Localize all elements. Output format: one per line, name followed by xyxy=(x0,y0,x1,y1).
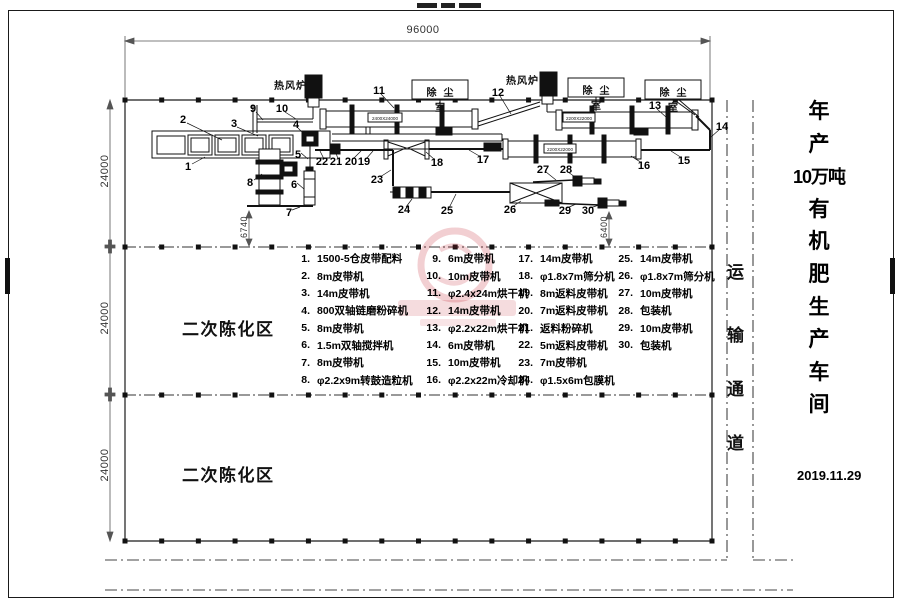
legend-item-number: 1. xyxy=(288,253,310,265)
legend-column: 17.14m皮带机18.φ1.8x7m筛分机19.8m返料皮带机20.7m返料皮… xyxy=(509,250,615,389)
zone-label-lower: 二次陈化区 xyxy=(182,461,275,486)
callout-number-8: 8 xyxy=(247,177,253,189)
tank-6 xyxy=(304,167,315,205)
legend-item: 23.7m皮带机 xyxy=(509,354,615,371)
legend-item-number: 27. xyxy=(608,287,633,299)
legend-item-number: 4. xyxy=(288,305,310,317)
legend-item-number: 7. xyxy=(288,357,310,369)
title-char: 产 xyxy=(791,129,847,162)
title-char: 间 xyxy=(791,389,847,422)
callout-number-20: 20 xyxy=(345,156,357,168)
dim-granulator-drop: 6740 xyxy=(239,207,249,247)
dim-bay-3: 24000 xyxy=(99,439,111,491)
callout-number-3: 3 xyxy=(231,118,237,130)
title-char: 车 xyxy=(791,357,847,390)
legend-item-number: 13. xyxy=(418,322,441,334)
callout-number-4: 4 xyxy=(293,119,299,131)
legend-item-number: 21. xyxy=(509,322,533,334)
legend-item-name: 14m皮带机 xyxy=(540,251,593,266)
legend-item-name: 14m皮带机 xyxy=(317,286,370,301)
legend-column: 25.14m皮带机26.φ1.8x7m筛分机27.10m皮带机28.包装机29.… xyxy=(608,250,715,354)
legend-item-name: 1.5m双轴搅拌机 xyxy=(317,338,393,353)
callout-number-16: 16 xyxy=(638,160,650,172)
title-char: 机 xyxy=(791,226,847,259)
callout-number-2: 2 xyxy=(180,114,186,126)
legend-item-number: 14. xyxy=(418,339,441,351)
legend-item: 20.7m返料皮带机 xyxy=(509,302,615,319)
legend-item-number: 18. xyxy=(509,270,533,282)
title-char: 肥 xyxy=(791,259,847,292)
legend-item-name: φ1.8x7m筛分机 xyxy=(640,269,715,284)
zone-label-upper: 二次陈化区 xyxy=(182,315,275,340)
callout-number-22: 22 xyxy=(316,156,328,168)
legend-item: 24.φ1.5x6m包膜机 xyxy=(509,371,615,388)
callout-number-29: 29 xyxy=(559,205,571,217)
callout-number-1: 1 xyxy=(185,161,191,173)
legend-item-number: 22. xyxy=(509,339,533,351)
legend-item: 8.φ2.2x9m转鼓造粒机 xyxy=(288,371,413,388)
legend-item-number: 6. xyxy=(288,339,310,351)
legend-item-name: 6m皮带机 xyxy=(448,251,495,266)
legend-item-number: 29. xyxy=(608,322,633,334)
callout-number-17: 17 xyxy=(477,154,489,166)
legend-item-name: φ2.2x9m转鼓造粒机 xyxy=(317,373,413,388)
dust-room-b-label: 除尘室 xyxy=(568,82,624,112)
legend-item-name: 10m皮带机 xyxy=(448,269,501,284)
title-char: 年 xyxy=(791,96,847,129)
callout-number-26: 26 xyxy=(504,204,516,216)
legend-item-number: 15. xyxy=(418,357,441,369)
dim-top-width: 96000 xyxy=(398,24,448,36)
legend-item: 26.φ1.8x7m筛分机 xyxy=(608,267,715,284)
corridor-char-1: 运 xyxy=(727,258,744,283)
legend-item-name: 10m皮带机 xyxy=(640,321,693,336)
callout-number-6: 6 xyxy=(291,179,297,191)
cad-drawing-sheet: 2400X24000 2200X22000 2200X22000 96000 2… xyxy=(0,0,900,601)
legend-item-number: 10. xyxy=(418,270,441,282)
legend-item-name: φ1.8x7m筛分机 xyxy=(540,269,615,284)
callout-number-13: 13 xyxy=(649,100,661,112)
legend-item-name: 10m皮带机 xyxy=(448,355,501,370)
legend-item-name: 5m返料皮带机 xyxy=(540,338,608,353)
legend-item-number: 8. xyxy=(288,374,310,386)
legend-item-name: 包装机 xyxy=(640,338,672,353)
legend-item-number: 16. xyxy=(418,374,441,386)
furnace-2-label: 热风炉 xyxy=(506,72,539,87)
legend-item: 18.φ1.8x7m筛分机 xyxy=(509,267,615,284)
title-char: 10万吨 xyxy=(791,161,847,194)
legend-item-name: 14m皮带机 xyxy=(448,303,501,318)
legend-item-number: 23. xyxy=(509,357,533,369)
legend-item-name: φ1.5x6m包膜机 xyxy=(540,373,615,388)
legend-item: 27.10m皮带机 xyxy=(608,285,715,302)
callout-number-14: 14 xyxy=(716,121,728,133)
coating-machine-24 xyxy=(390,187,432,198)
hot-air-furnace-1 xyxy=(305,75,322,119)
legend-item-number: 20. xyxy=(509,305,533,317)
legend-item: 4.800双轴链磨粉碎机 xyxy=(288,302,413,319)
drum11-size-label: 2400X24000 xyxy=(372,116,399,121)
legend-item: 28.包装机 xyxy=(608,302,715,319)
callout-number-25: 25 xyxy=(441,205,453,217)
callout-number-12: 12 xyxy=(492,87,504,99)
legend-item: 22.5m返料皮带机 xyxy=(509,337,615,354)
legend-item-name: 8m皮带机 xyxy=(317,321,364,336)
legend-item-name: 8m返料皮带机 xyxy=(540,286,608,301)
belt-conveyor-27 xyxy=(533,180,574,182)
legend-item: 17.14m皮带机 xyxy=(509,250,615,267)
legend-item-name: 10m皮带机 xyxy=(640,286,693,301)
dim-packer-drop: 6400 xyxy=(599,207,609,247)
legend-item-number: 26. xyxy=(608,270,633,282)
drawing-date: 2019.11.29 xyxy=(797,468,861,483)
dim-bay-1: 24000 xyxy=(99,145,111,197)
legend-item-name: 8m皮带机 xyxy=(317,355,364,370)
legend-item-name: 7m皮带机 xyxy=(540,355,587,370)
legend-item-number: 25. xyxy=(608,253,633,265)
legend-item: 1.1500-5仓皮带配料 xyxy=(288,250,413,267)
corridor-char-2: 输 xyxy=(727,321,744,346)
legend-item-number: 30. xyxy=(608,339,633,351)
legend-item-number: 24. xyxy=(509,374,533,386)
legend-item-name: 8m皮带机 xyxy=(317,269,364,284)
callout-number-27: 27 xyxy=(537,164,549,176)
legend-item-number: 12. xyxy=(418,305,441,317)
dust-room-a-label: 除尘室 xyxy=(412,84,468,114)
packing-machine-28 xyxy=(573,176,601,186)
corridor-char-4: 道 xyxy=(727,429,744,454)
legend-item: 3.14m皮带机 xyxy=(288,285,413,302)
legend-item-name: 包装机 xyxy=(640,303,672,318)
legend-item-number: 3. xyxy=(288,287,310,299)
callout-number-18: 18 xyxy=(431,157,443,169)
callout-number-21: 21 xyxy=(330,156,342,168)
title-char: 有 xyxy=(791,194,847,227)
furnace-1-label: 热风炉 xyxy=(274,77,307,92)
legend-item-name: 800双轴链磨粉碎机 xyxy=(317,303,408,318)
legend-column: 1.1500-5仓皮带配料2.8m皮带机3.14m皮带机4.800双轴链磨粉碎机… xyxy=(288,250,413,389)
incline-conveyor-12 xyxy=(478,102,540,126)
legend-item-name: 返料粉碎机 xyxy=(540,321,593,336)
legend-item-number: 5. xyxy=(288,322,310,334)
callout-number-7: 7 xyxy=(286,207,292,219)
legend-item-name: 14m皮带机 xyxy=(640,251,693,266)
callout-number-23: 23 xyxy=(371,174,383,186)
corridor-char-3: 通 xyxy=(727,375,744,400)
legend-item: 29.10m皮带机 xyxy=(608,319,715,336)
legend-item-number: 17. xyxy=(509,253,533,265)
belt-conveyor-3 xyxy=(332,134,502,141)
legend-item: 30.包装机 xyxy=(608,337,715,354)
legend-item-name: 1500-5仓皮带配料 xyxy=(317,251,402,266)
legend-item: 21.返料粉碎机 xyxy=(509,319,615,336)
callout-number-9: 9 xyxy=(250,103,256,115)
legend-item-number: 11. xyxy=(418,287,441,299)
title-char: 产 xyxy=(791,324,847,357)
legend-item: 5.8m皮带机 xyxy=(288,319,413,336)
callout-number-30: 30 xyxy=(582,205,594,217)
drawing-title-vertical: 年产10万吨有机肥生产车间 xyxy=(791,96,847,422)
legend-item: 6.1.5m双轴搅拌机 xyxy=(288,337,413,354)
legend-item: 25.14m皮带机 xyxy=(608,250,715,267)
legend-item-number: 19. xyxy=(509,287,533,299)
legend-item-number: 2. xyxy=(288,270,310,282)
callout-number-15: 15 xyxy=(678,155,690,167)
title-char: 生 xyxy=(791,292,847,325)
callout-number-10: 10 xyxy=(276,103,288,115)
legend-item: 19.8m返料皮带机 xyxy=(509,285,615,302)
legend-item: 2.8m皮带机 xyxy=(288,267,413,284)
legend-item-number: 9. xyxy=(418,253,441,265)
legend-item: 7.8m皮带机 xyxy=(288,354,413,371)
callout-number-28: 28 xyxy=(560,164,572,176)
drum16-size-label: 2200X22000 xyxy=(547,147,574,152)
hot-air-furnace-2 xyxy=(540,72,557,112)
drum13-size-label: 2200X22000 xyxy=(566,116,593,121)
callout-number-5: 5 xyxy=(295,149,301,161)
callout-number-24: 24 xyxy=(398,204,410,216)
callout-number-11: 11 xyxy=(373,85,385,97)
legend-item-number: 28. xyxy=(608,305,633,317)
legend-item-name: 6m皮带机 xyxy=(448,338,495,353)
dim-bay-2: 24000 xyxy=(99,292,111,344)
callout-number-19: 19 xyxy=(358,156,370,168)
legend-item-name: 7m返料皮带机 xyxy=(540,303,608,318)
